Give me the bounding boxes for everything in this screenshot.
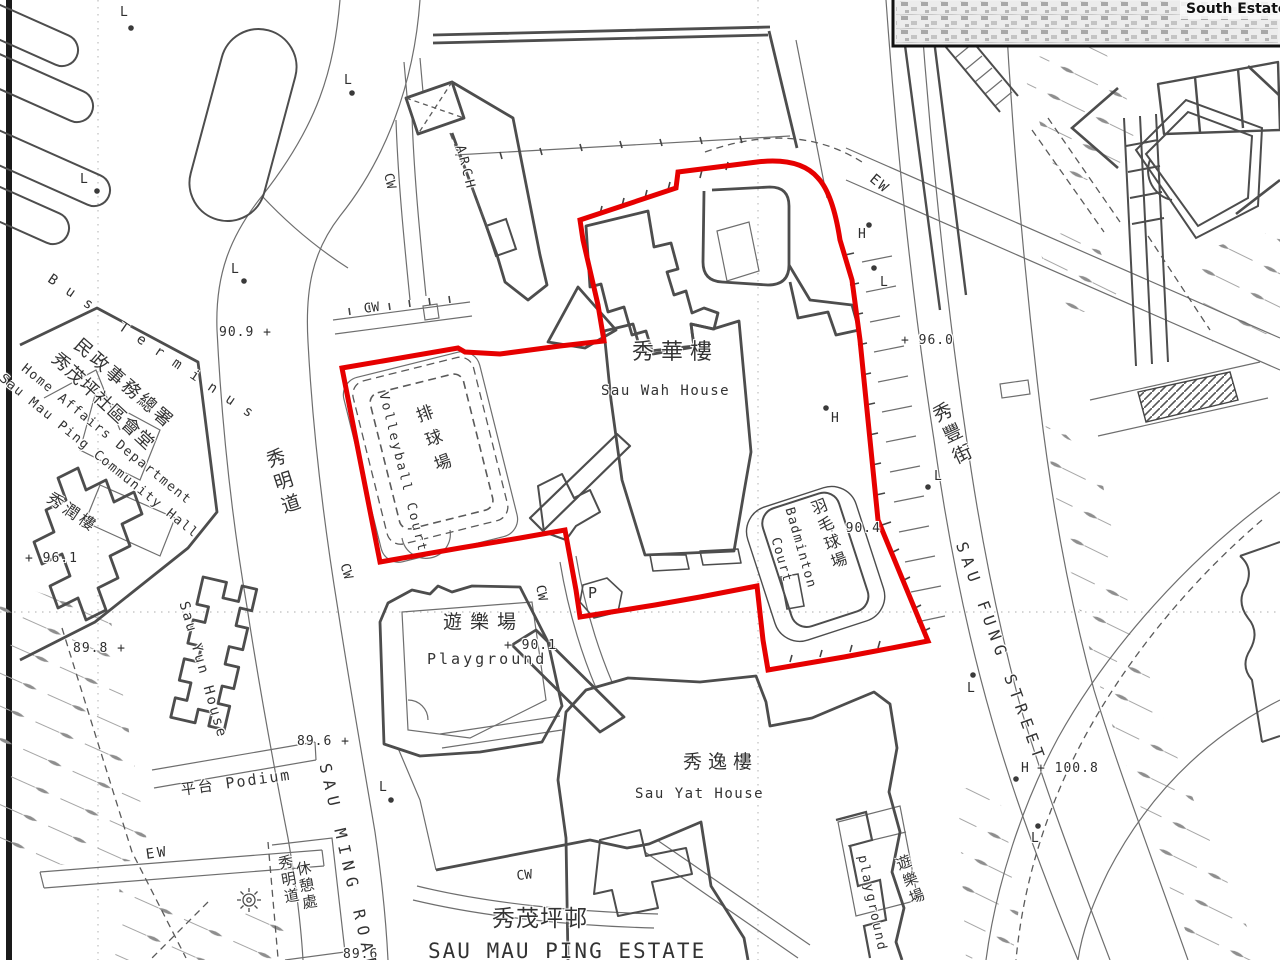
- bus-terminus-island: [181, 21, 305, 230]
- lamp-label: L: [1031, 832, 1039, 845]
- lamp-label: L: [934, 470, 942, 483]
- cw-label-3: CW: [338, 562, 355, 581]
- sau-wah-house-label-cn: 秀華樓: [632, 342, 719, 364]
- spot-height-100-8: + 100.8: [1037, 762, 1099, 775]
- spot-height-89-8: 89.8 +: [73, 642, 126, 655]
- garden-symbol: [237, 888, 261, 912]
- stepped-ramp: [1138, 372, 1238, 422]
- cw-label-5: CW: [516, 868, 533, 883]
- playground-west-label-en: Playground: [427, 652, 547, 667]
- cw-label-4: CW: [533, 584, 549, 602]
- spot-height-89-6a: 89.6 +: [297, 735, 350, 748]
- survey-map-canvas: Bus Terminus 民政事務總署 秀茂坪社區會堂 Home Affairs…: [0, 0, 1280, 960]
- lamp-label: L: [120, 6, 128, 19]
- lamp-label: L: [967, 682, 975, 695]
- map-linework: [0, 0, 1280, 960]
- p-label: P: [588, 586, 597, 601]
- estate-title-cn: 秀茂坪邨: [492, 908, 588, 931]
- sau-yat-house-label-en: Sau Yat House: [635, 787, 764, 801]
- spot-height-96-1: + 96.1: [25, 552, 78, 565]
- hydrant-label: H: [1021, 762, 1029, 775]
- inset-south-estate-label: South Estate: [1186, 2, 1280, 16]
- sau-yat-house-label-cn: 秀逸樓: [683, 753, 758, 772]
- lamp-label: L: [80, 173, 88, 186]
- lamp-label: L: [231, 263, 239, 276]
- playground-west-label-cn: 遊樂場: [443, 613, 524, 632]
- lamp-label: L: [344, 74, 352, 87]
- hydrant-label: H: [831, 412, 839, 425]
- cw-label-2: CW: [363, 301, 380, 316]
- estate-title-en: SAU MAU PING ESTATE: [428, 941, 706, 960]
- sau-wah-house-label-en: Sau Wah House: [601, 384, 730, 398]
- hydrant-label: H: [858, 228, 866, 241]
- slope-hatching: [0, 40, 1280, 960]
- retaining-wall-ticks: [349, 136, 930, 662]
- spot-height-96-0: + 96.0: [901, 334, 954, 347]
- spot-height-90-9: 90.9 +: [219, 326, 272, 339]
- ew-label-west: EW: [145, 845, 170, 862]
- lamp-label: L: [379, 781, 387, 794]
- north-slab: [433, 27, 797, 148]
- utility-dots: [94, 25, 1041, 829]
- cw-label-1: CW: [381, 172, 397, 190]
- arch-building: [406, 82, 547, 300]
- lamp-label: L: [880, 276, 888, 289]
